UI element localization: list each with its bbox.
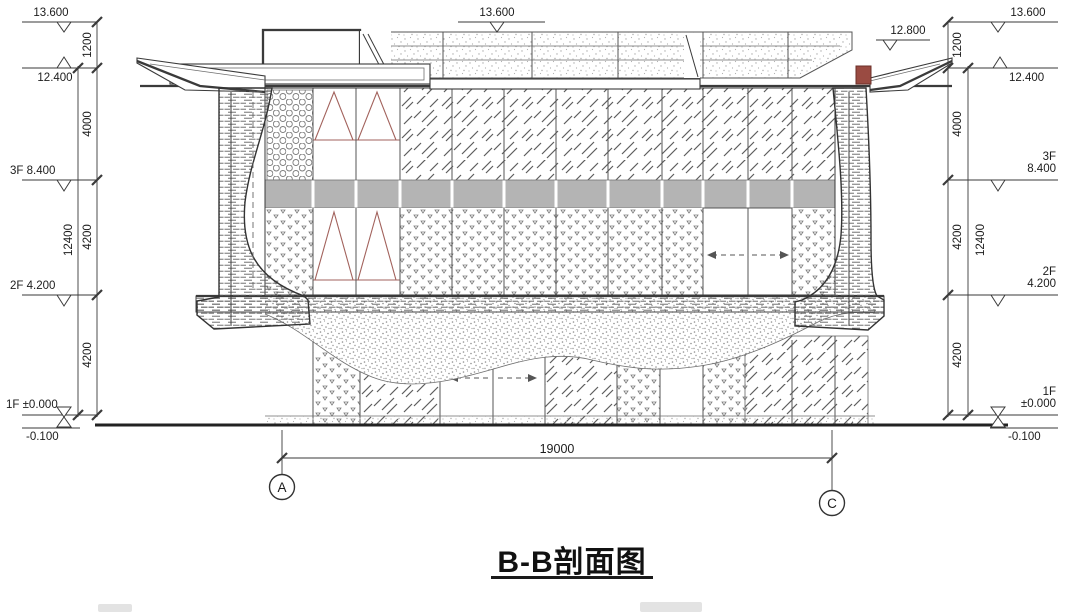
level-right-1f: 1F ±0.000 [1000, 386, 1056, 410]
dim-right-4200-upper: 4200 [952, 217, 964, 257]
grid-label-c: C [818, 496, 846, 511]
level-value-4200-right: 4.200 [1008, 278, 1056, 290]
floor-label-3f-right: 3F [1008, 151, 1056, 163]
dim-right-1200: 1200 [952, 25, 964, 65]
floor-label-2f-right: 2F [1008, 266, 1056, 278]
photo-artifact [640, 602, 702, 612]
facade-upper [265, 88, 835, 180]
drawing-title: B-B剖面图 [430, 537, 714, 581]
level-right-minus: -0.100 [1008, 431, 1041, 443]
level-right-13600: 13.600 [1000, 7, 1056, 19]
roof-drain-detail [856, 66, 871, 84]
level-right-3f: 3F 8.400 [1008, 151, 1056, 175]
floor-label-1f-right: 1F [1000, 386, 1056, 398]
dim-left-total: 12400 [63, 217, 75, 263]
dim-left-1200: 1200 [82, 25, 94, 65]
dim-right-4200-lower: 4200 [952, 335, 964, 375]
level-value-0000-right: ±0.000 [1000, 398, 1056, 410]
level-value-0000: ±0.000 [23, 399, 58, 411]
level-value-4200: 4.200 [27, 280, 56, 292]
level-left-2f: 2F 4.200 [10, 280, 55, 292]
level-left-12400: 12.400 [28, 72, 82, 84]
dim-right-4000: 4000 [952, 104, 964, 144]
section-drawing [0, 0, 1080, 612]
level-left-minus: -0.100 [26, 431, 59, 443]
level-left-13600: 13.600 [24, 7, 78, 19]
level-right-12400: 12.400 [1009, 72, 1044, 84]
dim-left-4200-lower: 4200 [82, 335, 94, 375]
level-left-1f: 1F ±0.000 [6, 399, 58, 411]
level-value-8400-right: 8.400 [1008, 163, 1056, 175]
photo-artifact [98, 604, 132, 612]
drawing-sheet: 13.600 1200 12.400 4000 3F 8.400 4200 12… [0, 0, 1080, 612]
roof-level-mark [458, 22, 545, 32]
level-right-12800: 12.800 [884, 25, 932, 37]
level-value-8400: 8.400 [27, 165, 56, 177]
level-left-3f: 3F 8.400 [10, 165, 55, 177]
floor-label-3f: 3F [10, 165, 23, 177]
dim-right-total: 12400 [975, 217, 987, 263]
grid-label-a: A [268, 480, 296, 495]
floor-label-2f: 2F [10, 280, 23, 292]
span-dimension: 19000 [525, 442, 589, 456]
spandrel-band [265, 180, 835, 208]
dim-left-4200-upper: 4200 [82, 217, 94, 257]
level-roof-13600: 13.600 [462, 7, 532, 19]
level-right-2f: 2F 4.200 [1008, 266, 1056, 290]
dim-left-4000: 4000 [82, 104, 94, 144]
floor-label-1f: 1F [6, 399, 19, 411]
title-underline [491, 576, 653, 579]
